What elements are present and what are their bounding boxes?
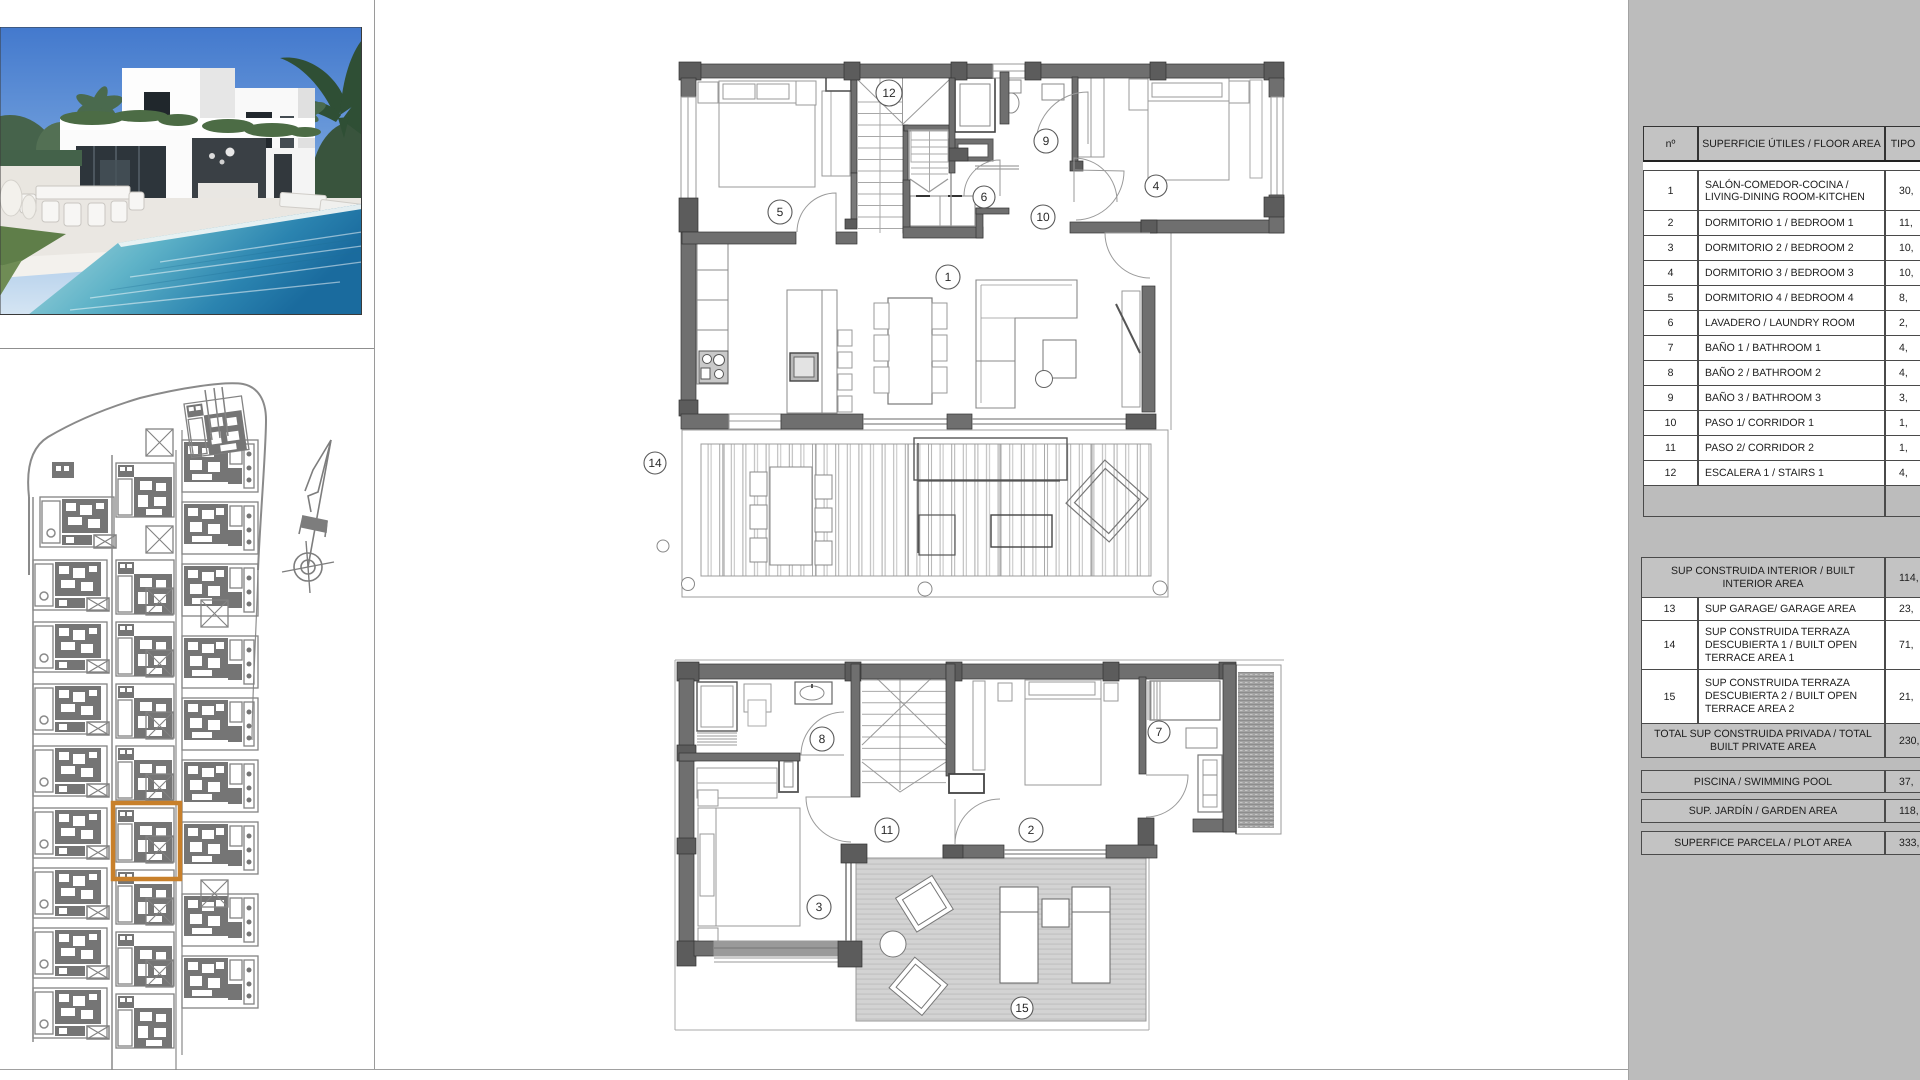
svg-text:8: 8 [819,732,826,746]
svg-text:11: 11 [881,823,894,837]
svg-text:2: 2 [1028,823,1035,837]
svg-text:4: 4 [1153,179,1160,193]
svg-text:9: 9 [1043,134,1050,148]
svg-text:3: 3 [816,900,823,914]
svg-text:14: 14 [648,456,662,470]
svg-text:10: 10 [1036,210,1050,224]
svg-text:6: 6 [981,190,988,204]
svg-text:12: 12 [882,86,896,100]
svg-text:5: 5 [777,205,784,219]
svg-text:15: 15 [1015,1001,1029,1015]
svg-text:7: 7 [1156,725,1163,739]
svg-text:1: 1 [945,270,952,284]
